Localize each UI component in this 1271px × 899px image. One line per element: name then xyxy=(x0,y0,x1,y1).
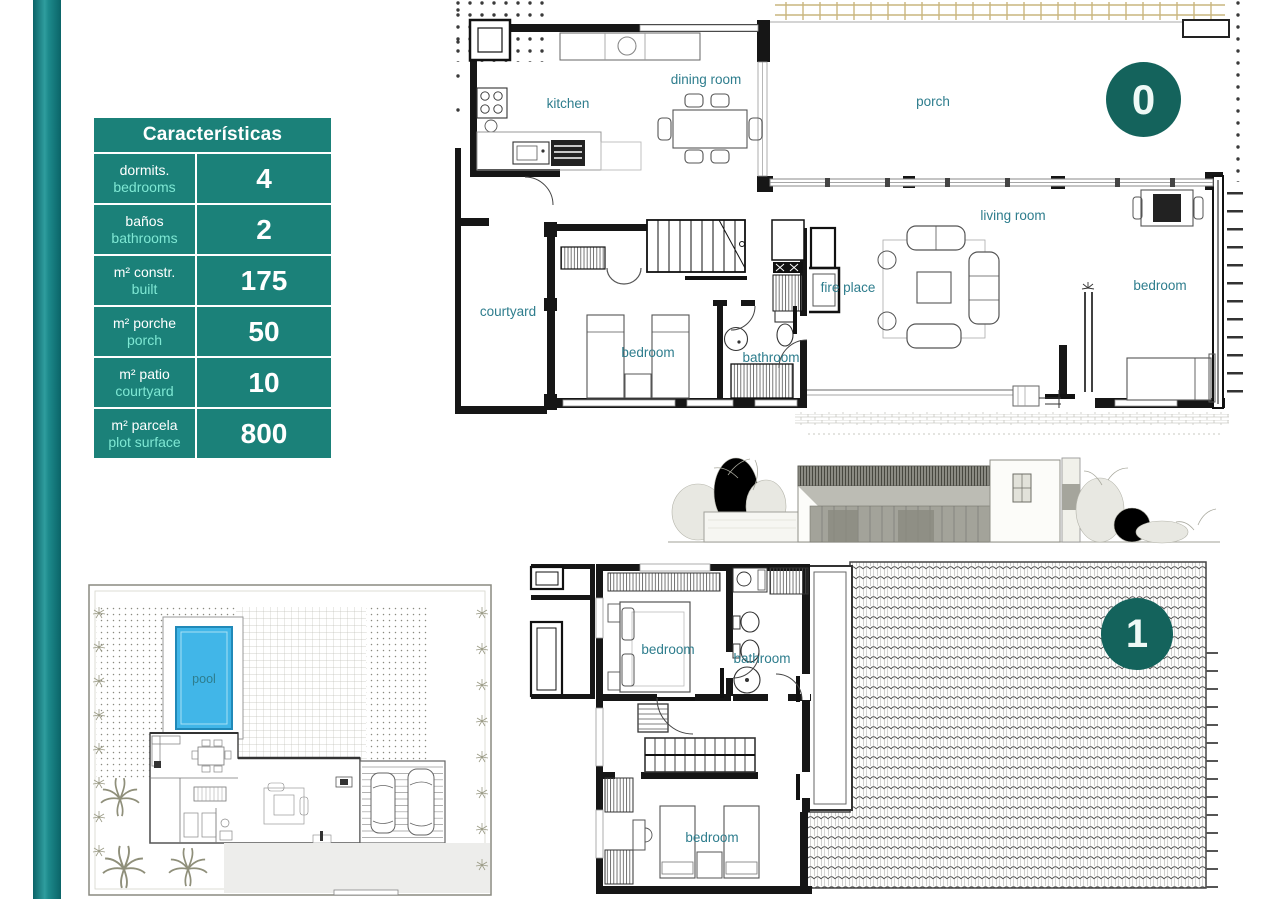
row-value: 175 xyxy=(197,256,331,305)
room-label-courtyard: courtyard xyxy=(480,304,536,319)
row-label-en: plot surface xyxy=(108,434,180,451)
room-label-kitchen: kitchen xyxy=(547,96,590,111)
porch-footing xyxy=(1183,20,1229,37)
row-value: 2 xyxy=(197,205,331,254)
row-label-en: bedrooms xyxy=(113,179,175,196)
row-value: 50 xyxy=(197,307,331,356)
pool-label: pool xyxy=(192,672,216,686)
walls xyxy=(455,20,1225,414)
characteristics-table: Características dormits.bedrooms 4 baños… xyxy=(94,118,331,458)
table-row: m² patiocourtyard 10 xyxy=(94,358,331,407)
row-label-es: dormits. xyxy=(120,162,170,179)
terrace-strip xyxy=(808,566,852,810)
eave-shadow xyxy=(798,486,990,506)
sofa-set xyxy=(878,226,999,348)
ramp-hatch xyxy=(561,247,605,269)
row-label-es: m² patio xyxy=(119,366,170,383)
floor0-badge: 0 xyxy=(1106,62,1181,137)
room-label-bathroom: bathroom xyxy=(733,651,790,666)
room-label-bedroom-right: bedroom xyxy=(1133,278,1186,293)
room-label-fire-place: fire place xyxy=(821,280,876,295)
table-row: dormits.bedrooms 4 xyxy=(94,154,331,203)
row-label-es: baños xyxy=(125,213,163,230)
car xyxy=(408,769,434,835)
gate xyxy=(334,890,398,895)
room-label-living-room: living room xyxy=(980,208,1045,223)
fireplace xyxy=(809,228,839,312)
row-label-en: porch xyxy=(127,332,162,349)
row-label-es: m² parcela xyxy=(111,417,177,434)
console-table xyxy=(607,268,641,284)
table-row: m² parcelaplot surface 800 xyxy=(94,409,331,458)
row-value: 4 xyxy=(197,154,331,203)
room-label-bedroom-bottom: bedroom xyxy=(685,830,738,845)
staircase xyxy=(638,704,755,772)
living-glazing xyxy=(770,178,1213,187)
floor1-badge: 1 xyxy=(1101,598,1173,670)
table-row: m² constr.built 175 xyxy=(94,256,331,305)
dining-table xyxy=(658,94,762,163)
site-plan: pool xyxy=(88,583,498,899)
driveway xyxy=(224,843,490,893)
table-row: m² porcheporch 50 xyxy=(94,307,331,356)
room-label-bedroom: bedroom xyxy=(621,345,674,360)
right-vegetation xyxy=(1076,468,1216,543)
living-south-glazing xyxy=(807,386,1075,406)
pavement-texture xyxy=(795,412,1229,425)
paving-grid xyxy=(236,607,366,779)
bathroom-fixtures xyxy=(733,568,808,693)
room-label-porch: porch xyxy=(916,94,950,109)
staircase xyxy=(647,220,747,280)
row-label-es: m² porche xyxy=(113,315,176,332)
row-label-es: m² constr. xyxy=(114,264,175,281)
row-label-en: courtyard xyxy=(115,383,173,400)
shower xyxy=(731,364,793,398)
pergola-beams xyxy=(775,2,1225,20)
room-label-bedroom-top: bedroom xyxy=(641,642,694,657)
carport xyxy=(360,761,445,843)
bedroom-top-furniture xyxy=(608,573,720,692)
roof-fascia xyxy=(798,466,990,486)
cabinet xyxy=(772,220,804,311)
car xyxy=(371,773,395,833)
east-ticks xyxy=(1227,192,1243,393)
garden-wall xyxy=(704,512,800,542)
elevation-sketch xyxy=(658,430,1225,548)
left-accent-bar xyxy=(33,0,61,899)
characteristics-title: Características xyxy=(94,118,331,152)
row-label-en: built xyxy=(132,281,158,298)
room-label-dining-room: dining room xyxy=(671,72,742,87)
row-value: 10 xyxy=(197,358,331,407)
table-row: bañosbathrooms 2 xyxy=(94,205,331,254)
room-label-bathroom: bathroom xyxy=(742,350,799,365)
roof-ticks xyxy=(1206,652,1218,888)
gravel-dots xyxy=(1231,0,1247,182)
store-room xyxy=(470,20,510,60)
row-value: 800 xyxy=(197,409,331,458)
row-label-en: bathrooms xyxy=(111,230,177,247)
planter-boxes xyxy=(531,564,595,699)
